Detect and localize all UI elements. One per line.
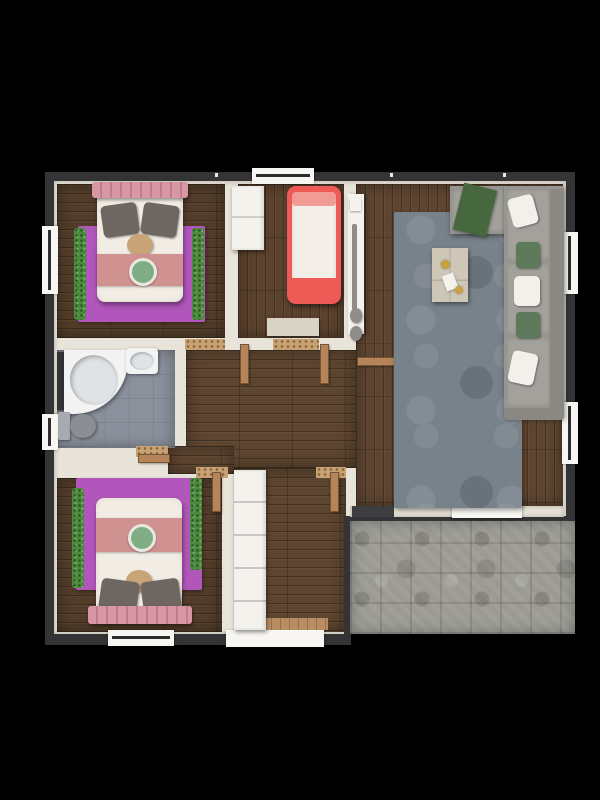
toilet-tank	[58, 412, 70, 440]
corridor-door-leaf	[330, 472, 339, 512]
living-room-window-bottom	[562, 402, 578, 464]
wall-joint-mark	[390, 173, 393, 177]
bedroom2-garland-left	[72, 488, 84, 588]
terrace-door-mat	[352, 506, 394, 517]
bedroom2-footboard-ruffle	[88, 606, 192, 624]
kids-room-door-threshold	[273, 339, 319, 350]
kids-bed-blanket	[292, 278, 336, 298]
sofa-pillow-green-1	[516, 242, 540, 268]
kids-room-door-leaf	[320, 344, 329, 384]
kids-bed-pillow	[292, 192, 336, 206]
terrace-floor	[350, 521, 575, 634]
bedroom2-door-leaf	[212, 472, 221, 512]
console-decor-item	[350, 198, 361, 211]
kids-floor-mat	[267, 318, 319, 336]
bedroom2-garland-right	[190, 478, 202, 570]
sofa-backrest	[550, 189, 564, 415]
toilet-bowl	[70, 414, 96, 438]
bedroom1-garland-left	[74, 228, 86, 320]
console-shelf-bar	[352, 224, 357, 310]
window-glass	[48, 230, 51, 290]
bedroom1-headboard-ruffle	[92, 182, 188, 198]
corridor-wardrobe	[234, 470, 266, 630]
living-room-window-top	[562, 232, 578, 294]
bedroom1-garland-right	[192, 228, 204, 320]
window-glass	[256, 174, 310, 177]
bedroom2-window	[108, 630, 174, 646]
kids-bed-mattress	[292, 192, 336, 292]
bathroom-window	[42, 414, 58, 450]
entry-mat	[262, 618, 328, 630]
console-vase-2	[350, 326, 362, 341]
sofa-armrest	[504, 408, 564, 420]
bedroom1-pillow-right	[140, 202, 180, 239]
bedroom2-runner-emblem	[128, 524, 156, 552]
kids-room-window	[252, 168, 314, 184]
washbasin-bowl	[130, 352, 154, 370]
window-glass	[568, 406, 571, 460]
table-gold-decor-1	[441, 260, 450, 269]
bedroom1-window	[42, 226, 58, 294]
bedroom1-pillow-left	[100, 202, 140, 239]
bedroom1-runner-emblem	[129, 258, 157, 286]
window-glass	[568, 236, 571, 290]
wall-joint-mark	[503, 173, 506, 177]
sofa-pillow-white-2	[514, 276, 540, 306]
entry-door	[226, 630, 324, 647]
window-glass	[112, 636, 170, 639]
table-gold-decor-2	[455, 286, 463, 294]
sofa-pillow-green-2	[516, 312, 540, 338]
bedroom1-door-threshold	[185, 339, 225, 350]
bedroom1-door-leaf	[240, 344, 249, 384]
console-vase-1	[350, 308, 362, 323]
wall-joint-mark	[215, 173, 218, 177]
window-glass	[48, 418, 51, 446]
kids-wardrobe	[232, 186, 264, 250]
bedroom1-round-cushion	[127, 234, 153, 256]
bathroom-door-leaf	[138, 454, 170, 463]
floor-plan-render	[0, 0, 600, 800]
